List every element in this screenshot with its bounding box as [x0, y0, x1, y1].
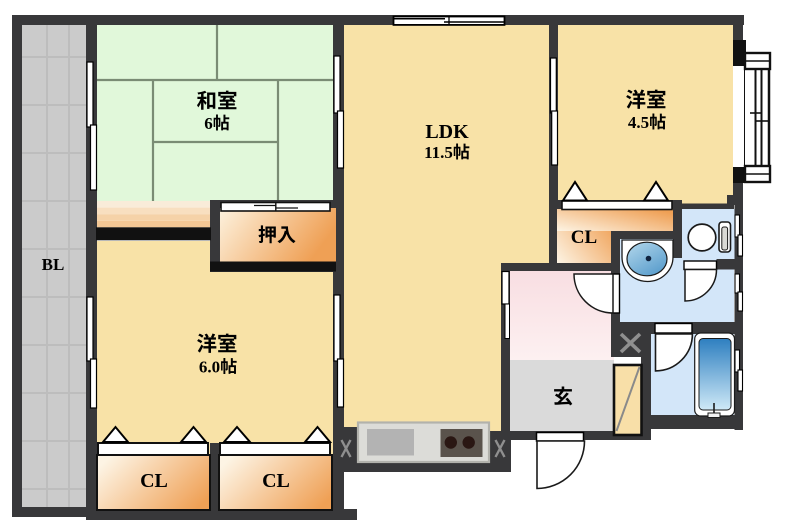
- svg-text:CL: CL: [262, 470, 290, 492]
- svg-text:LDK: LDK: [425, 121, 469, 143]
- svg-text:6: 6: [204, 114, 213, 133]
- svg-text:CL: CL: [140, 470, 168, 492]
- svg-text:BL: BL: [42, 255, 65, 274]
- svg-text:4.5: 4.5: [628, 113, 649, 132]
- svg-text:11.5: 11.5: [424, 143, 453, 162]
- svg-text:6.0: 6.0: [199, 358, 220, 377]
- svg-text:CL: CL: [571, 227, 597, 248]
